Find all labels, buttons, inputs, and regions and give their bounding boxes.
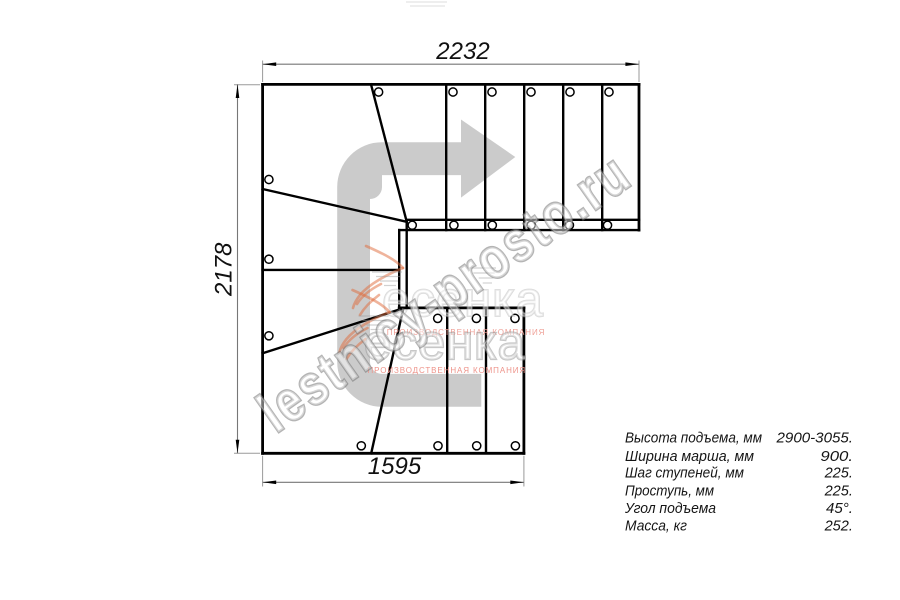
svg-text:Шаг ступеней, мм: Шаг ступеней, мм (625, 465, 744, 482)
svg-text:Ширина марша, мм: Ширина марша, мм (625, 448, 754, 465)
svg-text:2232: 2232 (435, 38, 489, 65)
svg-text:225.: 225. (824, 465, 853, 482)
svg-text:225.: 225. (824, 482, 853, 499)
svg-text:Проступь, мм: Проступь, мм (625, 482, 714, 499)
svg-text:2178: 2178 (211, 242, 238, 297)
svg-text:Высота подъема, мм: Высота подъема, мм (625, 430, 762, 447)
svg-text:45°.: 45°. (826, 500, 853, 517)
svg-text:Масса, кг: Масса, кг (625, 518, 688, 535)
svg-text:252.: 252. (824, 518, 853, 535)
svg-text:2900-3055.: 2900-3055. (775, 430, 853, 447)
svg-text:900.: 900. (820, 448, 853, 465)
svg-text:1595: 1595 (368, 453, 422, 480)
svg-text:Угол подъема: Угол подъема (624, 500, 716, 517)
